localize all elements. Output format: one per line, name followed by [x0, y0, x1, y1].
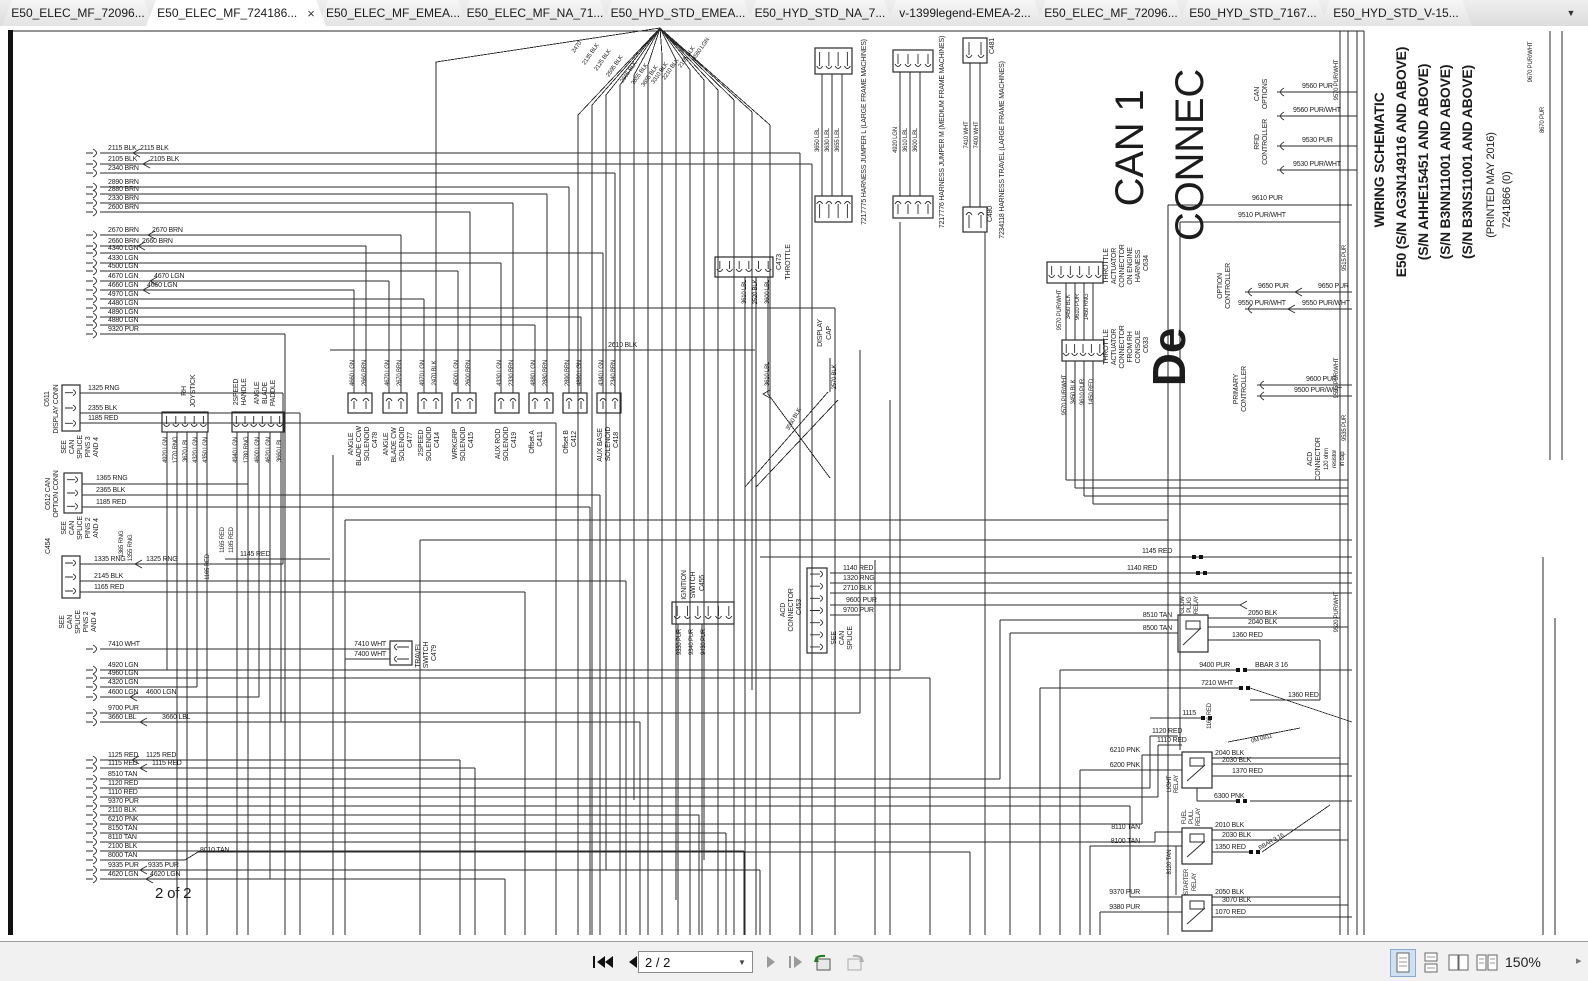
wire-label: 1145 RED	[240, 551, 270, 558]
chevron-down-icon: ▼	[1567, 8, 1576, 18]
wire-label: AND 4	[93, 437, 100, 457]
wire-label: 4350 LGN	[203, 437, 209, 463]
wire-label: 1450 RED	[1089, 378, 1095, 405]
wire-label: 2340 BRN	[611, 360, 617, 386]
wire-label: 9570 PUR/WHT	[1057, 289, 1063, 330]
wire-label: OPTION CONN	[53, 470, 60, 517]
wire-label: 3070 BLK	[1222, 897, 1252, 904]
wire-label: 9530 PUR/WHT	[1293, 161, 1342, 168]
wire-label: C612 CAN	[45, 478, 52, 510]
tab-6[interactable]: v-1399legend-EMEA-2...	[886, 0, 1044, 26]
fuse-mark	[1201, 716, 1205, 720]
tab-label: E50_HYD_STD_NA_7...	[755, 6, 886, 20]
wire-label: 4970 LGN	[108, 291, 138, 298]
wire-label: 2710 BLK	[843, 585, 873, 592]
wire-label: RH	[181, 386, 188, 396]
fuse-mark	[1243, 668, 1247, 672]
view-continuous-button[interactable]	[1418, 949, 1444, 977]
wire-label: 4970 LGN	[420, 360, 426, 386]
wire-label: 8000 TAN	[108, 852, 137, 859]
jumper-m-bottom	[893, 196, 933, 218]
wire-label: 2670 BRN	[152, 227, 183, 234]
starter-relay	[1182, 895, 1212, 931]
wire-label: 2040 BLK	[1215, 750, 1245, 757]
wire-label: 3630 LBL	[825, 127, 831, 152]
wire-label: 3610 LBL	[903, 127, 909, 152]
wire-label: THROTTLE	[1103, 329, 1110, 365]
wire-label: 4320 LGN	[108, 679, 138, 686]
wire-label: 2115 BLK	[108, 145, 137, 152]
wire-label: 2670 BRN	[108, 227, 139, 234]
wire-label: 2145 BLK	[94, 573, 124, 580]
wire-label: 4670 LGN	[154, 273, 184, 280]
rotate-right-icon	[843, 953, 865, 971]
rotate-left-button[interactable]	[812, 951, 836, 973]
wire-label: 4920 LGN	[108, 662, 138, 669]
wire-label: 9510 PUR/WHT	[1238, 212, 1287, 219]
c411	[529, 393, 553, 413]
wire-label: 4620 LGN	[266, 437, 272, 463]
rotate-right-button[interactable]	[842, 951, 866, 973]
wire-label: CAN	[69, 521, 76, 535]
view-book-button[interactable]	[1474, 949, 1500, 977]
wire-label: 1115 RED	[152, 760, 182, 767]
wire-label: SEE	[831, 631, 838, 645]
c412	[563, 393, 587, 413]
wire-label: 1070 RED	[1215, 909, 1246, 916]
wire-label: (S/N AHHE15451 AND ABOVE)	[1415, 64, 1431, 261]
wire-label: 4940 LGN	[233, 437, 239, 463]
wire-label: 2050 BLK	[1248, 610, 1278, 617]
wire-label: SOLENOID	[364, 427, 371, 462]
toolbar-overflow-chevron-icon[interactable]: ▸	[1576, 954, 1582, 967]
wire-label: 3610 LBL	[765, 361, 771, 386]
wire-label: 4600 LGN	[146, 689, 176, 696]
wire-label: 2610 BLK	[608, 342, 638, 349]
tab-8[interactable]: E50_HYD_STD_7167...	[1178, 0, 1328, 26]
tab-2[interactable]: E50_ELEC_MF_EMEA...	[318, 0, 468, 26]
close-icon[interactable]: ×	[307, 7, 315, 20]
wire-label: 9610 PUR	[1080, 378, 1086, 405]
wire-label: 9530 PUR	[1302, 137, 1333, 144]
wire-label: 2105 BLK	[150, 156, 180, 163]
wire-label: GLOW	[1180, 596, 1186, 614]
wire-label: 2470 BLK	[432, 360, 438, 385]
wire-label: 8500 TAN	[1143, 625, 1172, 632]
prev-icon	[625, 955, 639, 969]
bottom-toolbar: ▼ 150% ▸	[0, 941, 1588, 981]
wire-label: 4500 LGN	[454, 360, 460, 386]
wire-label: C412	[571, 431, 578, 447]
wire-label: BLADE CCW	[356, 426, 363, 466]
wire-label: 1365 RNG	[119, 530, 125, 557]
wire-label: ACD	[1307, 452, 1314, 466]
wire-label: 1120 RED	[1152, 728, 1182, 735]
next-icon	[765, 955, 779, 969]
tab-4[interactable]: E50_HYD_STD_EMEA...	[602, 0, 754, 26]
wire-label: 3450 BLK	[1066, 294, 1072, 319]
wire-label: 3660 LBL	[108, 714, 137, 721]
wire-label: C633	[1143, 337, 1150, 353]
wire-label: 1166 RED	[1207, 702, 1213, 729]
view-facing-button[interactable]	[1446, 949, 1472, 977]
wire-label: LIGHT	[1167, 775, 1173, 792]
wire-label: 3600 LBL	[765, 279, 771, 304]
wire-label: THROTTLE	[1103, 248, 1110, 284]
tab-label: E50_HYD_STD_7167...	[1189, 6, 1316, 20]
wire-label: 3670 LBL	[183, 437, 189, 462]
wire-label: 0M 0811	[1251, 733, 1274, 745]
first-page-button[interactable]	[592, 951, 616, 973]
wire-label: 4660 LGN	[350, 360, 356, 386]
wire-label: 9335 PUR	[108, 862, 139, 869]
wire-label: 4670 LGN	[385, 360, 391, 386]
wire-label: 4480 LGN	[108, 300, 138, 307]
wire-label: 1350 RED	[1215, 844, 1246, 851]
wire-label: 7210 WHT	[1201, 680, 1234, 687]
rh-joystick-connector	[162, 412, 208, 432]
wire-label: C415	[468, 432, 475, 448]
c419	[495, 393, 519, 413]
wire-label: 3660 LBL	[162, 714, 191, 721]
wire-label: THROTTLE	[785, 244, 792, 280]
wire-label: C473	[776, 254, 783, 270]
light-relay	[1182, 752, 1212, 788]
wire-label: 2010 BLK	[1215, 822, 1245, 829]
wire-label: 2330 BRN	[108, 195, 139, 202]
c478	[348, 393, 372, 413]
wire-label: SOLENOID	[605, 427, 612, 462]
glow-plug-relay	[1178, 615, 1208, 652]
skip-last-icon	[789, 955, 807, 969]
wire-label: 1355 RNG	[128, 534, 134, 561]
wire-label: C455	[699, 575, 706, 591]
wire-label: 9320 PUR	[108, 326, 139, 333]
c454	[62, 556, 80, 598]
wire-label: PINS 2	[83, 611, 90, 632]
wire-label: DISPLAY	[817, 319, 824, 347]
wire-label: 8110 TAN	[1111, 824, 1140, 831]
wire-label: 2340 BRN	[108, 165, 139, 172]
fuse-mark	[1239, 686, 1243, 690]
wire-label: C481	[989, 38, 996, 54]
fuse-mark	[1249, 850, 1253, 854]
wire-label: 4890 LGN	[577, 360, 583, 386]
wire-label: 7410 WHT	[354, 641, 387, 648]
wire-label: C453	[796, 599, 803, 615]
wire-label: 8510 TAN	[108, 771, 137, 778]
wire-label: 9670 PUR/WHT	[1528, 41, 1534, 82]
c612	[64, 473, 82, 513]
zoom-level[interactable]: 150%	[1505, 954, 1541, 970]
wire-label: C414	[434, 432, 441, 448]
wire-label: 4600 LGN	[255, 437, 261, 463]
wire-label: 3655 LBL	[835, 127, 841, 152]
wire-label: SPLICE	[847, 626, 854, 650]
wire-label: 2100 BLK	[108, 843, 138, 850]
wire-label: 1145 RED	[1142, 548, 1172, 555]
wire-label: 9535 PUR	[1342, 414, 1348, 441]
wire-label: C478	[372, 432, 379, 448]
wire-label: C477	[407, 432, 414, 448]
wire-label: 9650 PUR	[1318, 283, 1349, 290]
wire-label: 9560 PUR	[1302, 83, 1333, 90]
wire-label: 8110 TAN	[108, 834, 137, 841]
wire-label: 4880 LGN	[531, 360, 537, 386]
wire-label: 3660 LBL	[277, 437, 283, 462]
wire-label: SOLENOID	[426, 427, 433, 462]
wire-label: CAN	[839, 631, 846, 645]
c414	[418, 393, 442, 413]
watermark-de: De	[1143, 328, 1195, 386]
wire-label: 4880 LGN	[108, 317, 138, 324]
wire-label: 4340 LGN	[599, 360, 605, 386]
wire-label: 2570 BLK	[832, 364, 838, 389]
wire-label: PLUG	[1187, 597, 1193, 613]
wire-label: CONSOLE	[1135, 330, 1142, 363]
wire-label: 2600 BRN	[108, 204, 139, 211]
wire-label: SEE	[61, 521, 68, 535]
wire-label: 9650 PUR	[1258, 283, 1289, 290]
wire-label: 2SPEED	[418, 430, 425, 457]
tab-7[interactable]: E50_ELEC_MF_72096...	[1036, 0, 1186, 26]
wire-label: C454	[45, 538, 52, 554]
wire-label: 9600 PUR	[846, 597, 877, 604]
wire-label: FROM RH	[1127, 331, 1134, 362]
wire-label: 9555 PUR/WHT	[1334, 357, 1340, 398]
fuse-mark	[1236, 668, 1240, 672]
wire-label: CONTROLLER	[1241, 366, 1248, 412]
wire-label: 1140 RED	[843, 565, 873, 572]
wire-label: SPLICE	[75, 610, 82, 634]
wire-label: 1320 RNG	[843, 575, 874, 582]
wire-label: 6300 PNK	[1214, 793, 1245, 800]
jumper-m-top	[893, 50, 933, 72]
wire-label: ACTUATOR	[1111, 329, 1118, 365]
tab-label: v-1399legend-EMEA-2...	[899, 6, 1030, 20]
wire-label: 2880 BRN	[543, 360, 549, 386]
wire-label: 8100 TAN	[1111, 838, 1140, 845]
wire-label: 8670 PUR	[1540, 106, 1546, 133]
wire-label: OPTION	[1217, 273, 1224, 299]
wire-label: 7410 WHT	[964, 121, 970, 149]
wire-label: 2520 BLK	[753, 279, 759, 304]
wire-label: 4890 LGN	[108, 309, 138, 316]
wire-label: 7217776 HARNESS JUMPER M (MEDIUM FRAME M…	[939, 36, 946, 228]
wire-label: 9600 PUR	[1306, 376, 1337, 383]
wire-label: RELAY	[1174, 775, 1180, 793]
wire-label: 2030 BLK	[1222, 757, 1252, 764]
wire-label: E50 (S/N AG3N149116 AND ABOVE)	[1393, 47, 1409, 278]
wire-label: BLADE	[262, 381, 269, 403]
tab-1-active[interactable]: E50_ELEC_MF_724186...×	[146, 0, 326, 26]
wire-label: 2670 BRN	[397, 360, 403, 386]
wire-label: 1185 RED	[88, 415, 118, 422]
tab-3[interactable]: E50_ELEC_MF_NA_71...	[460, 0, 610, 26]
jumper-l-top	[815, 48, 852, 74]
wire-label: 4340 LGN	[108, 245, 138, 252]
wire-label: FUEL	[1182, 809, 1188, 824]
wire-label: OPTIONS	[1262, 78, 1269, 109]
wire-label: BBAR 3 16	[1255, 662, 1288, 669]
wire-label: C634	[1143, 255, 1150, 271]
tab-label: E50_ELEC_MF_EMEA...	[326, 6, 460, 20]
wire-label: 1450 RNG	[1084, 293, 1090, 320]
tab-overflow-button[interactable]: ▼	[1554, 0, 1588, 26]
wire-label: 1115	[1182, 710, 1196, 717]
wire-label: 9380 PUR	[1109, 904, 1140, 911]
wire-label: 4920 LGN	[893, 127, 899, 153]
wire-label: SEE	[61, 440, 68, 454]
wire-label: SOLENOID	[399, 427, 406, 462]
wire-label: 2365 BLK	[96, 487, 126, 494]
c415	[452, 393, 476, 413]
handle-paddle-connector	[232, 412, 284, 432]
wire-label: 2115 BLK	[140, 145, 169, 152]
wire-label: 2660 BRN	[108, 238, 139, 245]
wire-label: TRAVEL	[415, 642, 422, 668]
wire-label: 1770 RNG	[173, 436, 179, 463]
wire-label: SWITCH	[423, 642, 430, 669]
wire-label: 7400 WHT	[354, 651, 387, 658]
facing-pages-icon	[1448, 952, 1470, 974]
wire-label: ANGLE	[348, 432, 355, 455]
wire-label: CONNECTOR	[1315, 437, 1322, 480]
tab-5[interactable]: E50_HYD_STD_NA_7...	[746, 0, 894, 26]
wire-label: 2470	[571, 40, 584, 54]
wire-label: 9610 PUR	[1252, 195, 1283, 202]
wire-label: 4920 LGN	[163, 437, 169, 463]
c477	[383, 393, 407, 413]
wire-label: AND 4	[91, 612, 98, 632]
wire-label: 1325 RNG	[88, 385, 119, 392]
c453-box	[807, 568, 827, 653]
wire-label: 9520 PUR/WHT	[1334, 591, 1340, 632]
wire-label: C418	[613, 432, 620, 448]
wire-label: 9370 PUR	[1109, 889, 1140, 896]
wire-label: ACTUATOR	[1111, 248, 1118, 284]
wire-label: PULL	[1189, 809, 1195, 824]
wire-label: SOLENOID	[503, 427, 510, 462]
wire-label: CONNECTOR	[1119, 244, 1126, 287]
book-view-icon	[1476, 952, 1498, 974]
wire-label: BBAR 3 16	[1258, 832, 1286, 852]
fuse-mark	[1199, 555, 1203, 559]
wire-label: 9700 PUR	[843, 607, 874, 614]
wire-label: ACD	[780, 603, 787, 617]
travel-switch-box	[390, 641, 412, 665]
wire-label: CAN	[69, 440, 76, 454]
wire-label: in cap	[1340, 451, 1346, 467]
c473-box	[715, 257, 773, 277]
wire-label: WRKGRP	[452, 428, 459, 459]
wire-label: PINS 3	[85, 436, 92, 457]
wire-label: Offset A	[529, 430, 536, 454]
wire-label: 9515 PUR	[1342, 244, 1348, 271]
wire-label: SOLENOID	[460, 427, 467, 462]
next-page-button[interactable]	[760, 951, 784, 973]
wire-label: 3450 BLK	[1071, 379, 1077, 404]
wire-label: 1120 RED	[108, 780, 138, 787]
wire-label: 4330 LGN	[497, 360, 503, 386]
wire-label: 1370 RED	[1232, 768, 1263, 775]
fuse-mark	[1203, 571, 1207, 575]
wire-label: 1125 RED	[146, 752, 176, 759]
wire-label: 9335 PUR	[148, 862, 179, 869]
wire-label: SPLICE	[77, 435, 84, 459]
wire-label: 4660 LGN	[108, 282, 138, 289]
wire-label: 6200 PNK	[1110, 762, 1141, 769]
wire-label: 4600 LGN	[108, 689, 138, 696]
wire-label: 9370 PUR	[108, 798, 139, 805]
wire-label: 8150 TAN	[108, 825, 137, 832]
tab-0[interactable]: E50_ELEC_MF_72096...	[2, 0, 154, 26]
wire-label: 1165 RED	[220, 526, 226, 553]
wire-label: HARNESS	[1135, 249, 1142, 282]
wire-label: 1325 RNG	[146, 556, 177, 563]
wire-label: 4330 LGN	[108, 255, 138, 262]
page-combo-arrow-icon[interactable]: ▼	[733, 958, 751, 967]
wire-label: 7410 WHT	[108, 641, 141, 648]
wire-label: 6210 PNK	[1110, 747, 1141, 754]
c480-box	[963, 207, 987, 232]
wire-label: CONNECTOR	[1119, 325, 1126, 368]
document-canvas[interactable]: CAN 1CONNECDeWIRING SCHEMATICE50 (S/N AG…	[0, 26, 1588, 941]
wire-label: 8510 TAN	[1143, 612, 1172, 619]
last-page-button[interactable]	[786, 951, 810, 973]
wire-label: 9400 PUR	[1199, 662, 1230, 669]
wire-label: 1165 RED	[94, 584, 124, 591]
wire-label: 2660 BRN	[362, 360, 368, 386]
wire-label: 1780 RNG	[244, 436, 250, 463]
wire-label: 1185 RED	[229, 526, 235, 553]
ignition-switch-box	[672, 602, 734, 624]
wire-label: AUX BASE	[597, 428, 604, 462]
wire-label: AUX ROD	[495, 429, 502, 460]
fuse-mark	[1192, 555, 1196, 559]
c634-box	[1047, 262, 1103, 283]
wire-label: 6210 PNK	[108, 816, 139, 823]
wire-label: 2040 BLK	[1248, 619, 1278, 626]
wire-label: 1140 RED	[1127, 565, 1157, 572]
wire-label: PINS 2	[85, 517, 92, 538]
wire-label: 9570 PUR/WHT	[1062, 374, 1068, 415]
wire-label: ANGLE	[383, 432, 390, 455]
wire-label: 4620 LGN	[108, 871, 138, 878]
tab-label: E50_ELEC_MF_724186...	[157, 6, 297, 20]
tab-9[interactable]: E50_HYD_STD_V-15...	[1320, 0, 1472, 26]
wire-label: 1360 RED	[1288, 692, 1319, 699]
wire-label: SWITCH	[690, 572, 697, 599]
view-single-page-button[interactable]	[1390, 949, 1416, 977]
wire-label: C479	[431, 645, 438, 661]
wire-label: RELAY	[1194, 596, 1200, 614]
continuous-icon	[1423, 952, 1440, 974]
page-number-box: ▼	[638, 951, 753, 973]
wire-label: 2 of 2	[155, 885, 191, 902]
wire-label: ANGLE	[254, 381, 261, 404]
wire-label: 7400 WHT	[974, 121, 980, 149]
wire-label: PADDLE	[270, 379, 277, 406]
wire-label: 2SPEED	[233, 379, 240, 406]
wire-label: 9560 PUR/WHT	[1293, 107, 1342, 114]
c633-box	[1062, 340, 1104, 361]
wire-label: 4960 LGN	[108, 670, 138, 677]
wire-label: AND 4	[93, 518, 100, 538]
wire-label: RELAY	[1192, 873, 1198, 891]
page-number-input[interactable]	[639, 954, 733, 971]
wire-label: C611	[44, 391, 51, 407]
